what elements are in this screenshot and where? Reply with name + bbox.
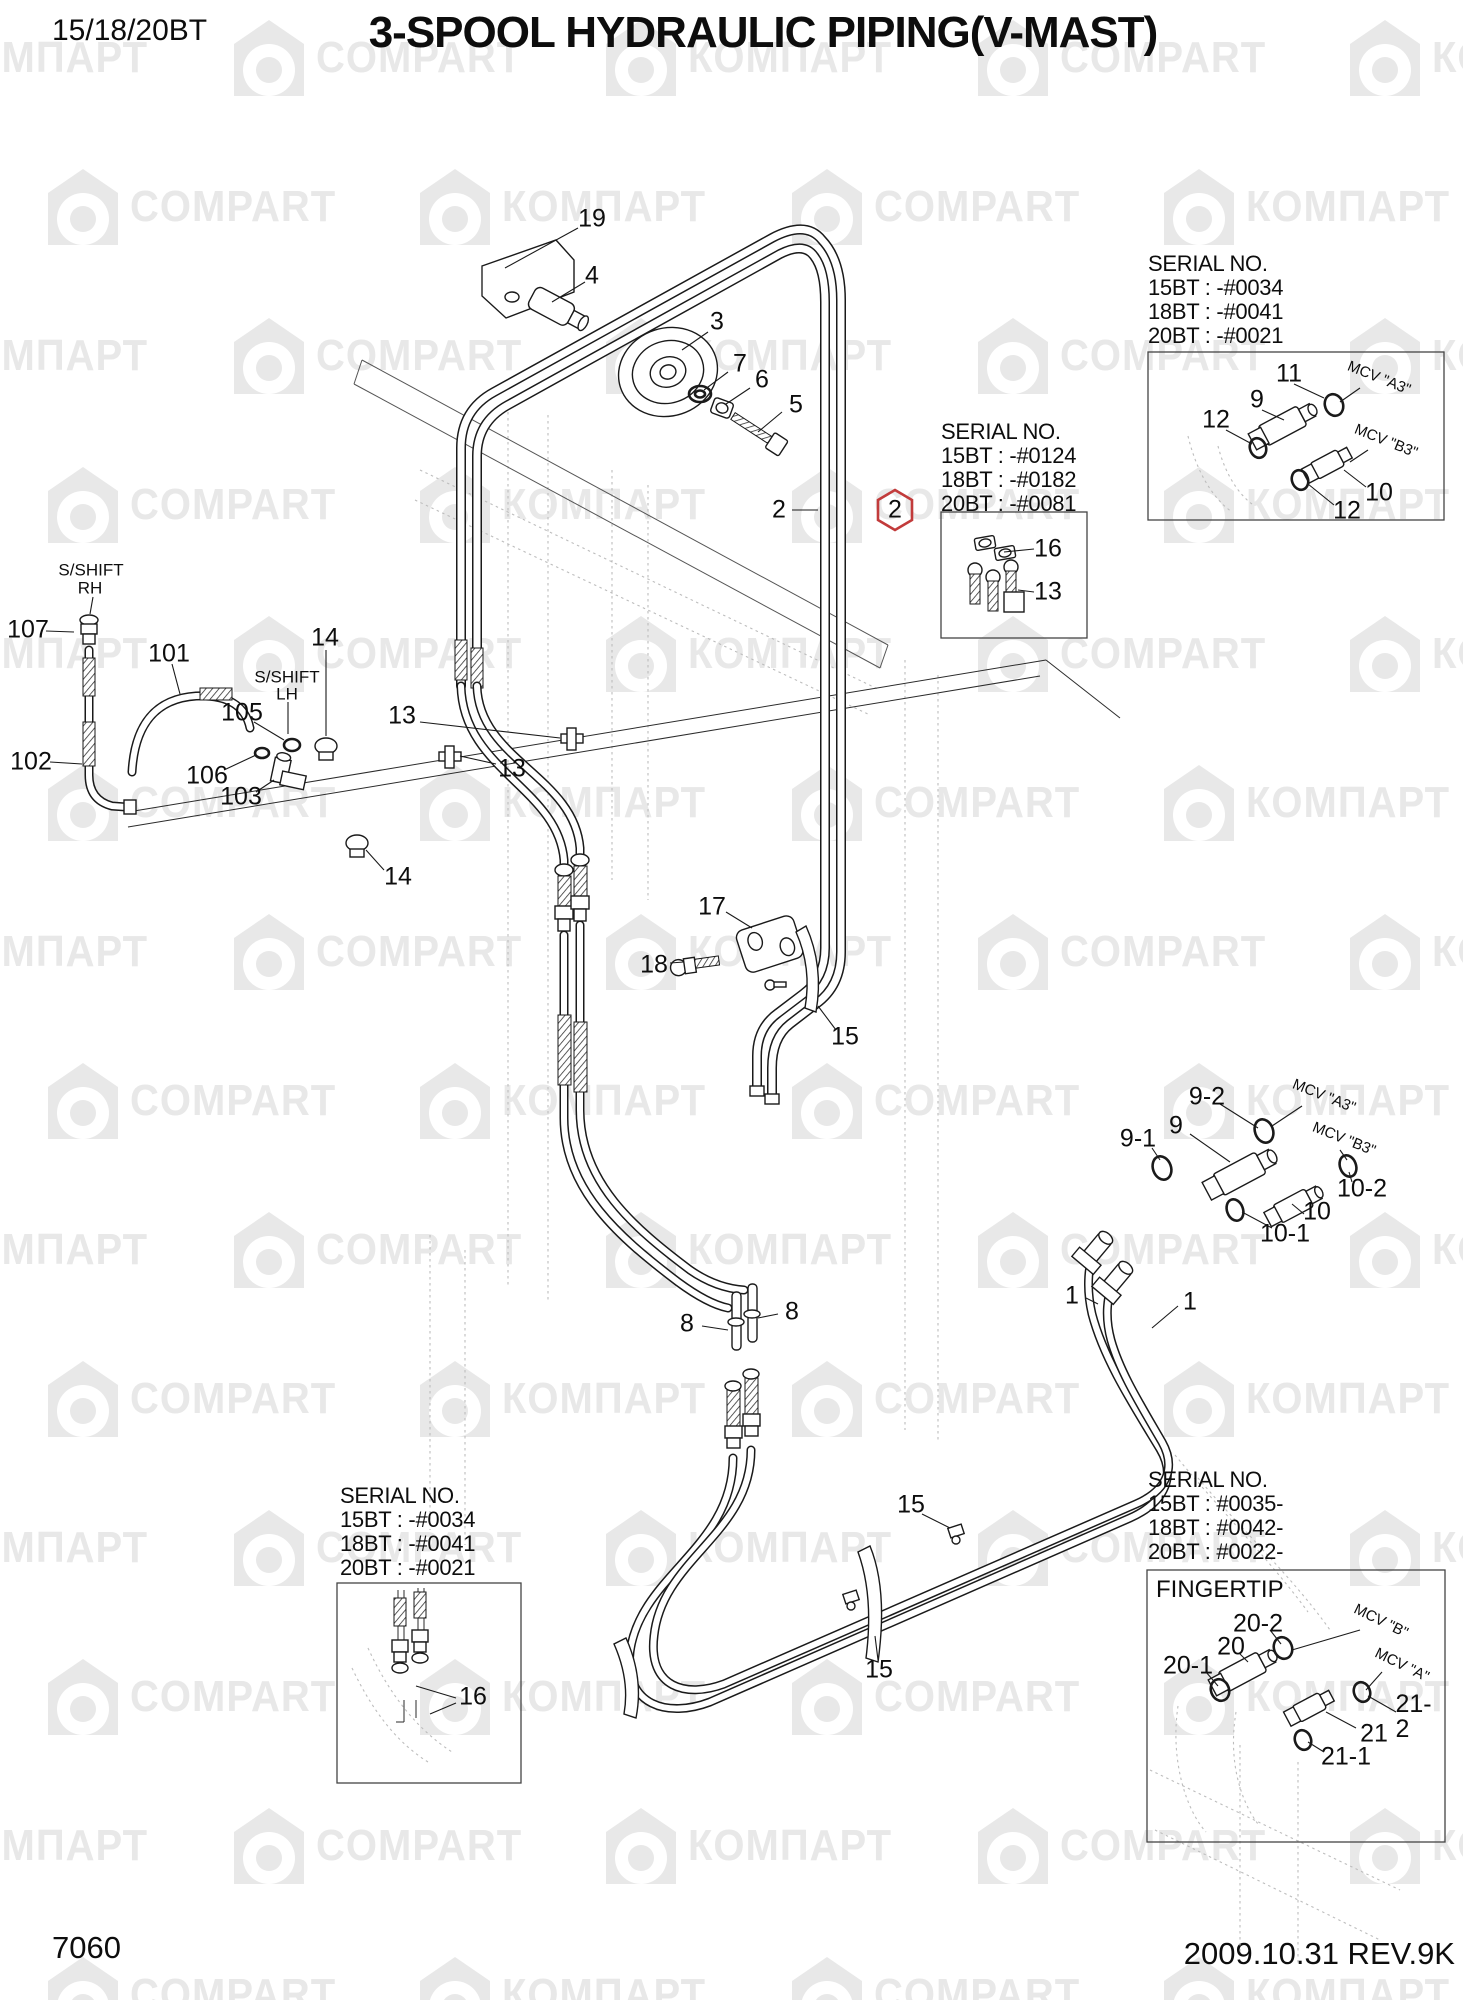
serial-number-note: SERIAL NO.15BT : -#012418BT : -#018220BT… <box>941 420 1076 516</box>
serial-number-line: SERIAL NO. <box>1148 252 1283 276</box>
serial-number-line: 15BT : #0035- <box>1148 1492 1283 1516</box>
serial-number-line: 20BT : -#0021 <box>1148 324 1283 348</box>
serial-number-line: SERIAL NO. <box>1148 1468 1283 1492</box>
serial-number-line: 20BT : -#0021 <box>340 1556 475 1580</box>
serial-number-line: 18BT : #0042- <box>1148 1516 1283 1540</box>
serial-number-line: SERIAL NO. <box>340 1484 475 1508</box>
serial-number-note: SERIAL NO.15BT : -#003418BT : -#004120BT… <box>1148 252 1283 348</box>
parts-diagram-page: КОМПАРТCOMPARTКОМПАРТCOMPARTКОМПАРТCOMPA… <box>0 0 1463 2000</box>
serial-number-line: 18BT : -#0041 <box>1148 300 1283 324</box>
serial-number-note: SERIAL NO.15BT : -#003418BT : -#004120BT… <box>340 1484 475 1580</box>
serial-number-line: 15BT : -#0034 <box>1148 276 1283 300</box>
serial-number-line: 15BT : -#0124 <box>941 444 1076 468</box>
serial-number-line: 20BT : #0022- <box>1148 1540 1283 1564</box>
serial-number-line: SERIAL NO. <box>941 420 1076 444</box>
serial-number-line: 18BT : -#0182 <box>941 468 1076 492</box>
serial-number-note: SERIAL NO.15BT : #0035-18BT : #0042-20BT… <box>1148 1468 1283 1564</box>
serial-number-line: 18BT : -#0041 <box>340 1532 475 1556</box>
serial-number-line: 15BT : -#0034 <box>340 1508 475 1532</box>
serial-number-line: 20BT : -#0081 <box>941 492 1076 516</box>
serial-note-layer: SERIAL NO.15BT : -#003418BT : -#004120BT… <box>0 0 1463 2000</box>
